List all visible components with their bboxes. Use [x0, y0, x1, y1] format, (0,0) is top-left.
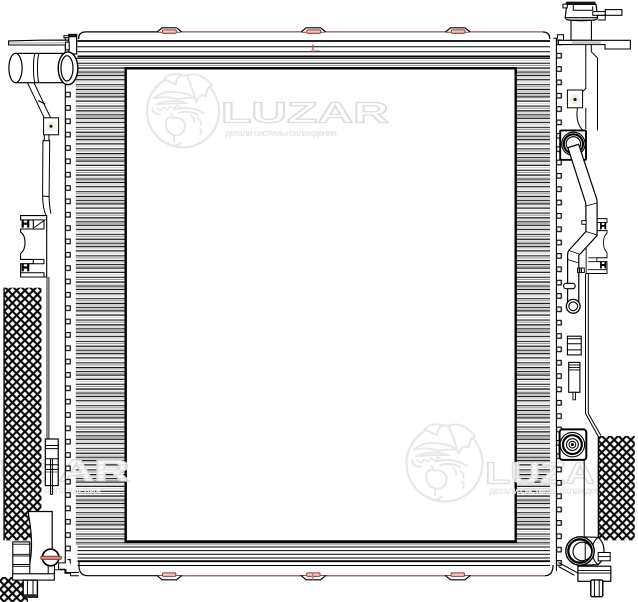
- svg-text:детали системы охлаждения: детали системы охлаждения: [225, 128, 337, 138]
- svg-text:LUZAR: LUZAR: [221, 97, 389, 129]
- svg-text:детали системы охлаждения: детали системы охлаждения: [489, 486, 611, 497]
